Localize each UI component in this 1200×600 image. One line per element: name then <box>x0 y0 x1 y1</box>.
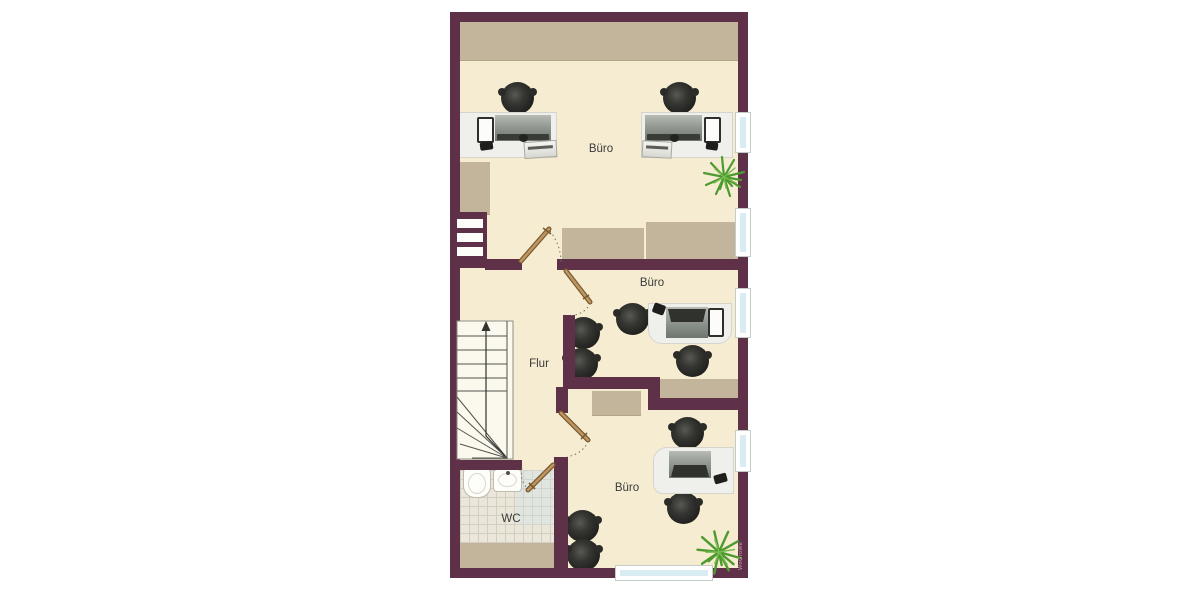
door-top-office <box>521 228 561 262</box>
door-swing-arc <box>569 303 590 316</box>
watermark: WoGroWe <box>738 528 744 570</box>
room-label-office-top: Büro <box>589 143 613 155</box>
door-wc <box>521 465 553 490</box>
plant-icon <box>704 157 744 196</box>
stairs <box>457 321 513 459</box>
door-swing-arc <box>550 231 561 262</box>
room-label-wc: WC <box>501 513 520 525</box>
door-middle-office <box>566 271 590 316</box>
door-swing-arc <box>567 441 588 457</box>
room-label-office-bottom: Büro <box>615 482 639 494</box>
plan-overlay <box>450 12 748 580</box>
room-label-hallway: Flur <box>529 358 549 370</box>
room-label-office-middle: Büro <box>640 277 664 289</box>
floorplan-canvas: Büro Büro Büro Flur WC WoGroWe <box>0 0 1200 600</box>
door-bottom-office <box>561 413 588 457</box>
